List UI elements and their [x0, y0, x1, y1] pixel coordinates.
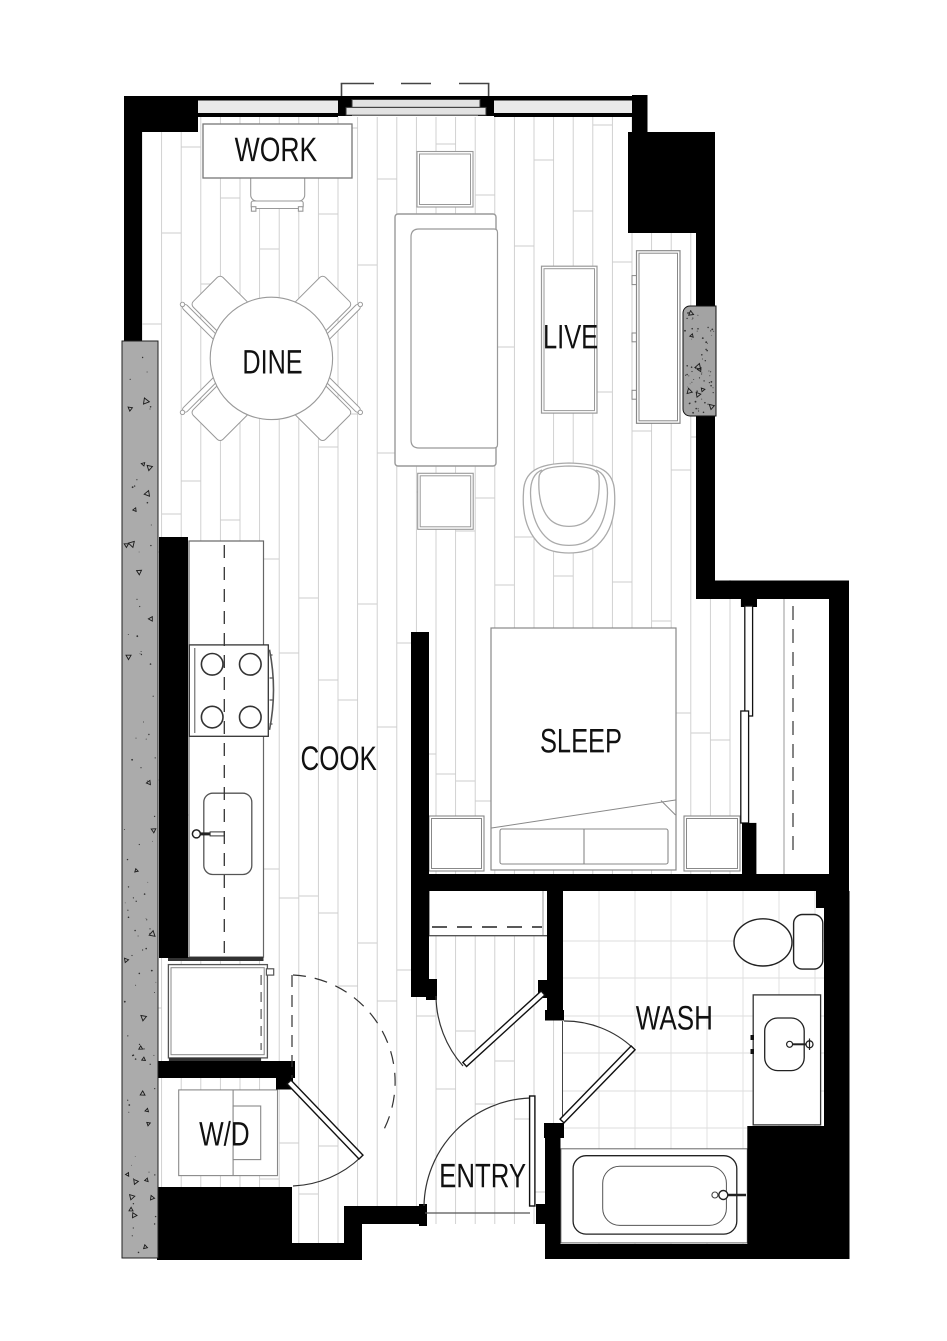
svg-text:COOK: COOK [301, 740, 378, 778]
svg-text:WASH: WASH [636, 999, 713, 1037]
svg-text:SLEEP: SLEEP [540, 722, 622, 760]
svg-text:LIVE: LIVE [543, 318, 598, 356]
svg-text:WORK: WORK [235, 131, 318, 169]
svg-text:DINE: DINE [242, 343, 302, 381]
svg-text:ENTRY: ENTRY [439, 1157, 526, 1195]
svg-text:W/D: W/D [199, 1115, 250, 1153]
